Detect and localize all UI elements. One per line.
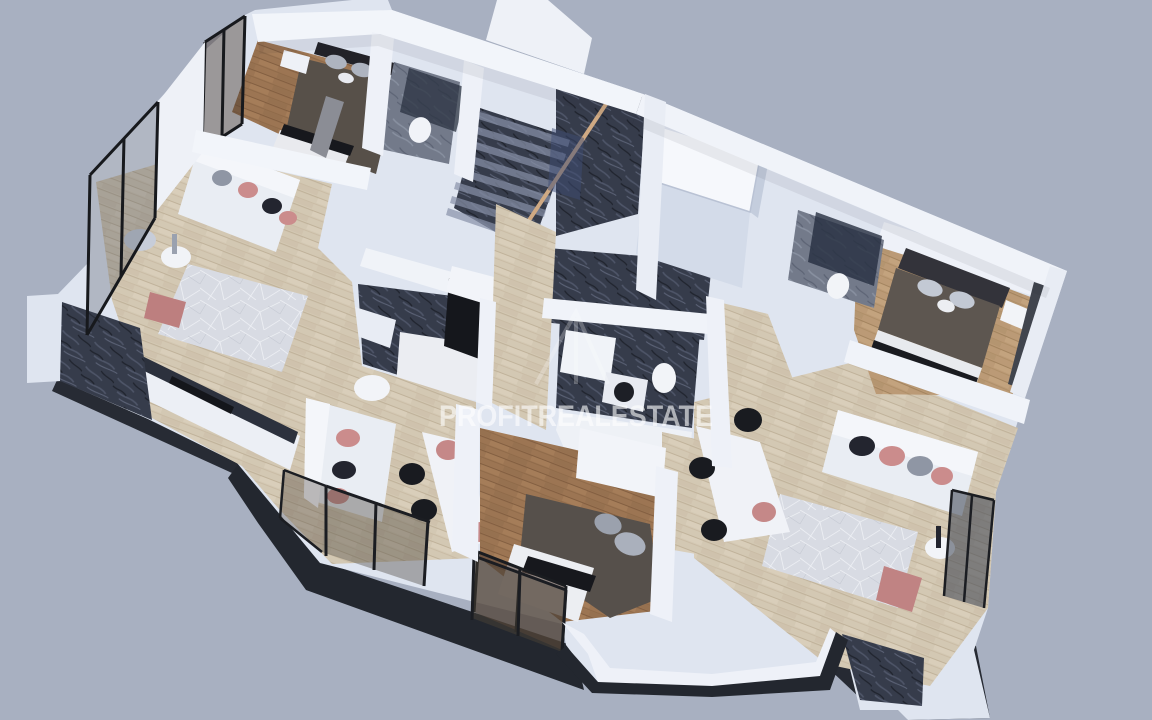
svg-text:PROFITREALESTATE: PROFITREALESTATE bbox=[439, 400, 713, 433]
